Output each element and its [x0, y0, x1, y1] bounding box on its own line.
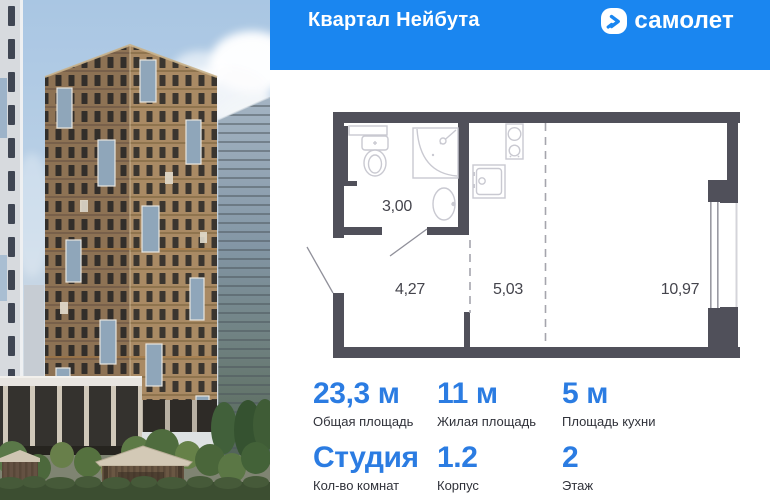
kitchen-area-label: 5,03: [493, 281, 523, 298]
brand-logo[interactable]: самолет: [601, 8, 734, 34]
background-building: [24, 285, 44, 380]
fixtures: [349, 124, 523, 220]
living-room-area-label: 10,97: [661, 281, 700, 298]
project-title: Квартал Нейбута: [308, 9, 480, 32]
neighbor-building-left: [0, 0, 23, 418]
header: Квартал Нейбута самолет: [270, 0, 770, 70]
entrance-door-swing: [307, 247, 333, 293]
toilet-icon: [362, 136, 388, 176]
info-panel: Квартал Нейбута самолет: [270, 0, 770, 500]
hallway-area-label: 4,27: [395, 281, 425, 298]
building-photo: [0, 0, 270, 500]
duct-icon: [349, 126, 387, 135]
samolet-logo-icon: [601, 8, 627, 34]
room-labels: 3,00 4,27 5,03 10,97: [382, 198, 700, 298]
stat-kitchen-area: 5 м Площадь кухни: [562, 379, 712, 429]
main-tower: [45, 45, 217, 432]
window: [708, 199, 738, 311]
floor-plan: 3,00 4,27 5,03 10,97: [270, 70, 770, 380]
walls: [333, 112, 740, 358]
brand-name: самолет: [634, 9, 734, 33]
stove-icon: [506, 124, 523, 159]
stat-floor: 2 Этаж: [562, 443, 712, 493]
listing-card[interactable]: Квартал Нейбута самолет: [0, 0, 770, 500]
bathroom-area-label: 3,00: [382, 198, 412, 215]
bath-sink-icon: [433, 188, 456, 220]
bathroom-door-swing: [390, 229, 427, 256]
shower-icon: [413, 128, 458, 178]
building-render-scene: [0, 0, 270, 500]
kitchen-sink-icon: [473, 165, 505, 198]
hedge: [0, 476, 270, 500]
